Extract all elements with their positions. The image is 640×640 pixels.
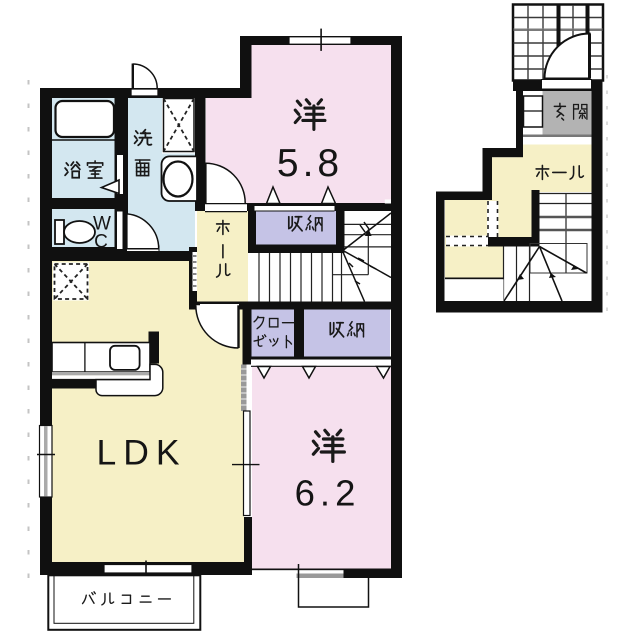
svg-text:C: C [94, 232, 108, 253]
svg-text:5.8: 5.8 [277, 142, 343, 185]
svg-text:LDK: LDK [96, 433, 186, 473]
svg-text:6.2: 6.2 [295, 473, 361, 514]
